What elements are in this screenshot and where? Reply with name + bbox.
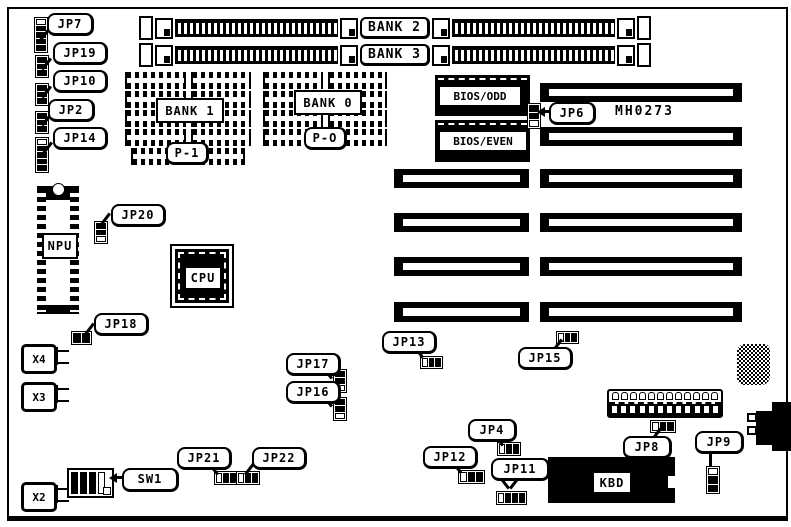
jumper-label-jp18: JP18 [94,313,149,336]
jumper-jp13 [420,356,443,369]
jumper-jp12 [458,470,485,484]
isa-slot [540,169,742,188]
chip-dashed-edge [438,123,527,125]
socket-endcap [139,16,153,40]
socket-pins [452,19,615,37]
x4-lead [58,362,69,364]
power-connector [607,389,723,418]
chip-notch-icon [668,476,675,488]
jumper-label-jp22: JP22 [252,447,307,470]
switch-label-sw1: SW1 [122,468,179,492]
jumper-jp11 [496,491,527,505]
jumper-label-jp21: JP21 [177,447,232,470]
x3-label: X3 [32,391,45,404]
sw1-index-dot [103,487,111,495]
jumper-label-jp11: JP11 [491,458,550,481]
isa-slot [540,213,742,232]
isa-slot [540,302,742,322]
chip-bios-odd: BIOS/ODD [435,75,530,116]
isa-slot-8bit [394,302,529,322]
bank2-label: BANK 2 [360,17,430,39]
x4-label: X4 [32,353,45,366]
socket-clip-icon [155,45,173,66]
isa-slot [540,257,742,276]
socket-clip-icon [340,18,358,39]
x3-lead [58,388,69,390]
socket-endcap [637,16,651,40]
socket-endcap [139,43,153,67]
jumper-jp18 [71,331,92,345]
chip-dashed-edge [438,78,527,80]
socket-clip-icon [155,18,173,39]
power-pins-top [609,391,721,404]
npu-label: NPU [42,233,78,259]
simm-socket-bank3: BANK 3 [139,42,651,68]
board-code: MH0273 [615,104,674,119]
jumper-label-jp8: JP8 [623,436,672,459]
socket-clip-icon [432,18,450,39]
jumper-label-jp6: JP6 [549,102,596,125]
jumper-label-jp2: JP2 [48,99,95,122]
p1-label: P-1 [166,142,209,165]
motherboard-jumper-diagram: BANK 2 BANK 3 BANK 1 P-1 BANK 0 P-O BIOS… [0,0,791,527]
jumper-label-jp12: JP12 [423,446,478,469]
jumper-label-jp15: JP15 [518,347,573,370]
bios-even-label: BIOS/EVEN [440,132,526,150]
isa-slot-8bit [394,169,529,188]
x3-lead [58,400,69,402]
x2-label: X2 [32,491,45,504]
simm-socket-bank2: BANK 2 [139,15,651,41]
crystal-x4: X4 [21,344,57,374]
chip-notch-icon [52,183,65,196]
bios-odd-label: BIOS/ODD [440,87,520,105]
chip-bios-even: BIOS/EVEN [435,120,530,162]
socket-endcap [637,43,651,67]
crystal-x2: X2 [21,482,57,512]
bank3-label: BANK 3 [360,44,430,66]
socket-clip-icon [432,45,450,66]
cpu-label: CPU [184,266,222,290]
jumper-label-jp4: JP4 [468,419,517,442]
power-pins-bottom [609,404,721,416]
jumper-label-jp19: JP19 [53,42,108,65]
kbd-label: KBD [594,473,630,492]
jumper-label-jp17: JP17 [286,353,341,376]
chip-kbd: KBD [548,457,675,503]
jumper-label-jp10: JP10 [53,70,108,93]
socket-clip-icon [340,45,358,66]
isa-slot [540,127,742,146]
keyboard-din-connector-body [772,402,791,451]
jumper-label-jp16: JP16 [286,381,341,404]
isa-slot-8bit [394,213,529,232]
isa-slot [540,83,742,102]
jumper-label-jp13: JP13 [382,331,437,354]
x4-lead [58,350,69,352]
din-pin-tab [747,413,757,422]
socket-clip-icon [617,18,635,39]
bank0-label: BANK 0 [294,90,362,115]
speaker-pad [736,343,771,386]
socket-pins [175,46,338,64]
isa-slot-8bit [394,257,529,276]
p0-label: P-O [304,127,347,150]
jumper-jp9 [706,466,720,494]
jumper-label-jp9: JP9 [695,431,744,454]
jumper-label-jp20: JP20 [111,204,166,227]
socket-clip-icon [617,45,635,66]
x2-lead [58,500,69,502]
din-pin-tab [747,426,757,435]
bank1-label: BANK 1 [156,98,224,123]
socket-pins [452,46,615,64]
jumper-jp8 [650,420,676,433]
jumper-label-jp14: JP14 [53,127,108,150]
jumper-label-jp7: JP7 [47,13,94,36]
crystal-x3: X3 [21,382,57,412]
jumper-jp14 [35,137,49,173]
socket-pins [175,19,338,37]
